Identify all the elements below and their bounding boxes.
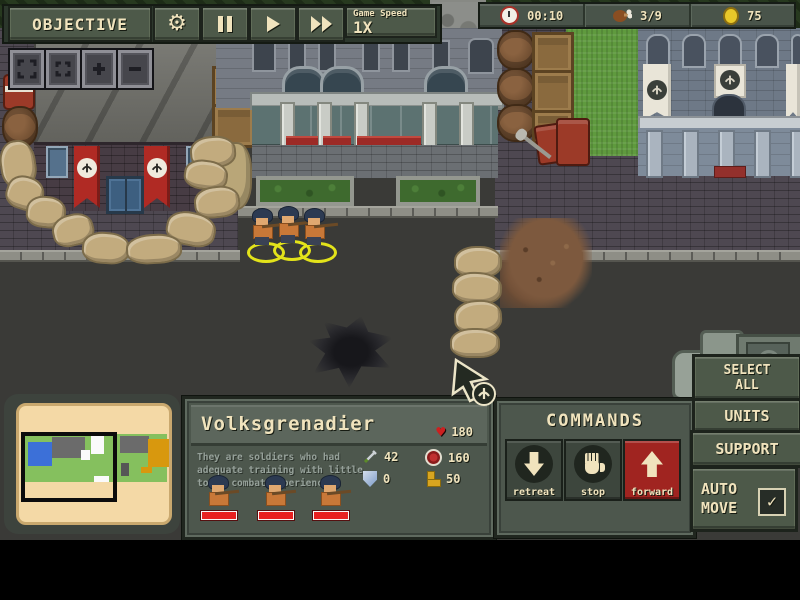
window [46,146,68,178]
pause-icon [218,16,223,32]
fast-forward-icon [322,16,332,32]
faction-emblem-icon [647,80,667,100]
wooden-barrel [497,68,535,108]
red-doormat [714,166,746,178]
column [790,130,800,178]
expand-view-icon [17,59,37,79]
gold-value: 75 [747,9,761,23]
soldier-legs [281,235,295,243]
white-banner [643,64,671,120]
minimap-orange-building [148,439,169,467]
settings-button[interactable]: ⚙ [153,6,201,42]
time-resource: 00:10 [480,4,583,27]
game-viewport[interactable]: OBJECTIVE ⚙ Game Speed 1X 00:10 3/9 [0,0,800,540]
fast-forward-icon [311,16,321,32]
minimap-viewport[interactable] [21,432,117,502]
play-icon [267,16,280,32]
wooden-barrel [497,30,535,70]
column [422,102,437,150]
wooden-crate [532,70,574,114]
faction-emblem-icon [147,158,167,178]
range-value: 160 [448,451,470,465]
units-button[interactable]: UNITS [692,398,800,434]
support-button[interactable]: SUPPORT [690,430,800,468]
unit-name: Volksgrenadier [201,413,375,435]
soldier-legs [255,237,269,245]
stop-hand-icon [574,445,612,483]
arched-window [755,34,779,68]
wooden-crate [532,32,574,74]
auto-move-toggle[interactable]: AUTO MOVE ✓ [690,466,798,532]
letterbox-bar [0,540,800,600]
dirt-patch [500,218,592,308]
armor-stat: 0 [363,471,390,487]
squad-member[interactable] [313,475,347,519]
commands-title: COMMANDS [497,411,693,431]
boot-icon [425,471,440,486]
unit-info-panel: Volksgrenadier ♥ 180 They are soldiers w… [182,396,496,540]
squad-member[interactable] [258,475,292,519]
center-building-base [252,145,498,178]
health-bar [201,511,237,520]
forward-arrow-icon [633,445,671,483]
column [754,130,771,178]
arched-window [646,34,670,68]
zoom-in-icon [89,59,109,79]
minimap[interactable] [16,403,172,525]
select-all-label: SELECT ALL [724,363,771,393]
faction-emblem-icon [720,70,740,90]
support-label: SUPPORT [715,440,778,458]
column [682,130,699,178]
hp-value: 180 [451,425,473,439]
arched-window [682,34,706,68]
soldier-legs [307,237,321,245]
pause-icon [227,16,232,32]
sword-icon [363,449,378,464]
minimap-gray-building [120,436,149,453]
coin-icon [723,7,739,25]
left-building-door [106,176,144,214]
auto-move-checkbox[interactable]: ✓ [758,488,786,516]
white-banner [786,64,800,120]
retreat-arrow-icon [515,445,553,483]
game-screen: OBJECTIVE ⚙ Game Speed 1X 00:10 3/9 [0,0,800,600]
attack-value: 42 [384,450,398,464]
minimap-orange-block [141,467,152,473]
fast-forward-button[interactable] [297,6,345,42]
auto-move-line2: MOVE [701,499,737,517]
target-icon [425,449,442,466]
stop-button[interactable]: stop [564,439,622,501]
hedge-planter [256,176,354,206]
resource-bar: 00:10 3/9 75 [478,2,796,29]
units-label: UNITS [724,407,769,425]
auto-move-label: AUTO MOVE [701,480,737,518]
unit-soldier[interactable] [300,208,330,256]
time-value: 00:10 [527,9,563,23]
play-button[interactable] [249,6,297,42]
game-speed-indicator: Game Speed 1X [345,6,437,38]
speed-stat: 50 [425,471,460,486]
arched-window [791,34,800,68]
pause-button[interactable] [201,6,249,42]
forward-button[interactable]: forward [623,439,681,501]
squad-member[interactable] [201,475,235,519]
range-stat: 160 [425,449,470,466]
select-all-line1: SELECT [724,363,771,378]
attack-stat: 42 [363,449,398,464]
gothic-window [468,38,494,74]
zoom-out-icon [125,59,145,79]
hedge-planter [396,176,480,206]
select-all-line2: ALL [735,378,758,393]
minimap-terrain [19,406,169,522]
gold-resource: 75 [689,4,794,27]
selection-ring [299,242,337,263]
center-view-button[interactable] [44,48,82,90]
arched-window [718,34,742,68]
sandbag [450,328,500,358]
unit-header: Volksgrenadier ♥ 180 [191,405,487,446]
center-view-icon [53,59,73,79]
emblem-plaque [714,64,746,98]
heart-icon: ♥ [436,423,445,441]
zoom-in-button[interactable] [80,48,118,90]
speed-value: 50 [446,472,460,486]
commands-panel: COMMANDS retreat stop forward [494,398,696,538]
clock-icon [500,6,519,25]
forward-label: forward [625,487,679,498]
crater [308,316,394,388]
column [459,102,474,150]
drumstick-icon [612,8,632,23]
armor-value: 0 [383,472,390,486]
select-all-button[interactable]: SELECT ALL [692,354,800,402]
objective-button[interactable]: OBJECTIVE [8,6,152,42]
expand-view-button[interactable] [8,48,46,90]
checkmark-icon: ✓ [767,493,777,512]
description-line: They are soldiers who had [197,451,367,464]
game-speed-value: 1X [353,20,429,36]
red-fuel-can [556,118,590,166]
health-bar [313,511,349,520]
stop-label: stop [566,487,620,498]
faction-emblem-icon [77,158,97,178]
retreat-button[interactable]: retreat [505,439,563,501]
hp-stat: ♥ 180 [436,423,473,441]
zoom-out-button[interactable] [116,48,154,90]
window [392,40,410,72]
minimap-panel [4,394,180,534]
shield-icon [363,471,377,487]
rations-resource: 3/9 [583,4,688,27]
rations-value: 3/9 [640,9,662,23]
gear-icon: ⚙ [167,13,187,35]
auto-move-line1: AUTO [701,480,737,498]
retreat-label: retreat [507,487,561,498]
minimap-gray-block [121,463,129,476]
window [362,40,380,72]
column [646,130,663,178]
health-bar [258,511,294,520]
